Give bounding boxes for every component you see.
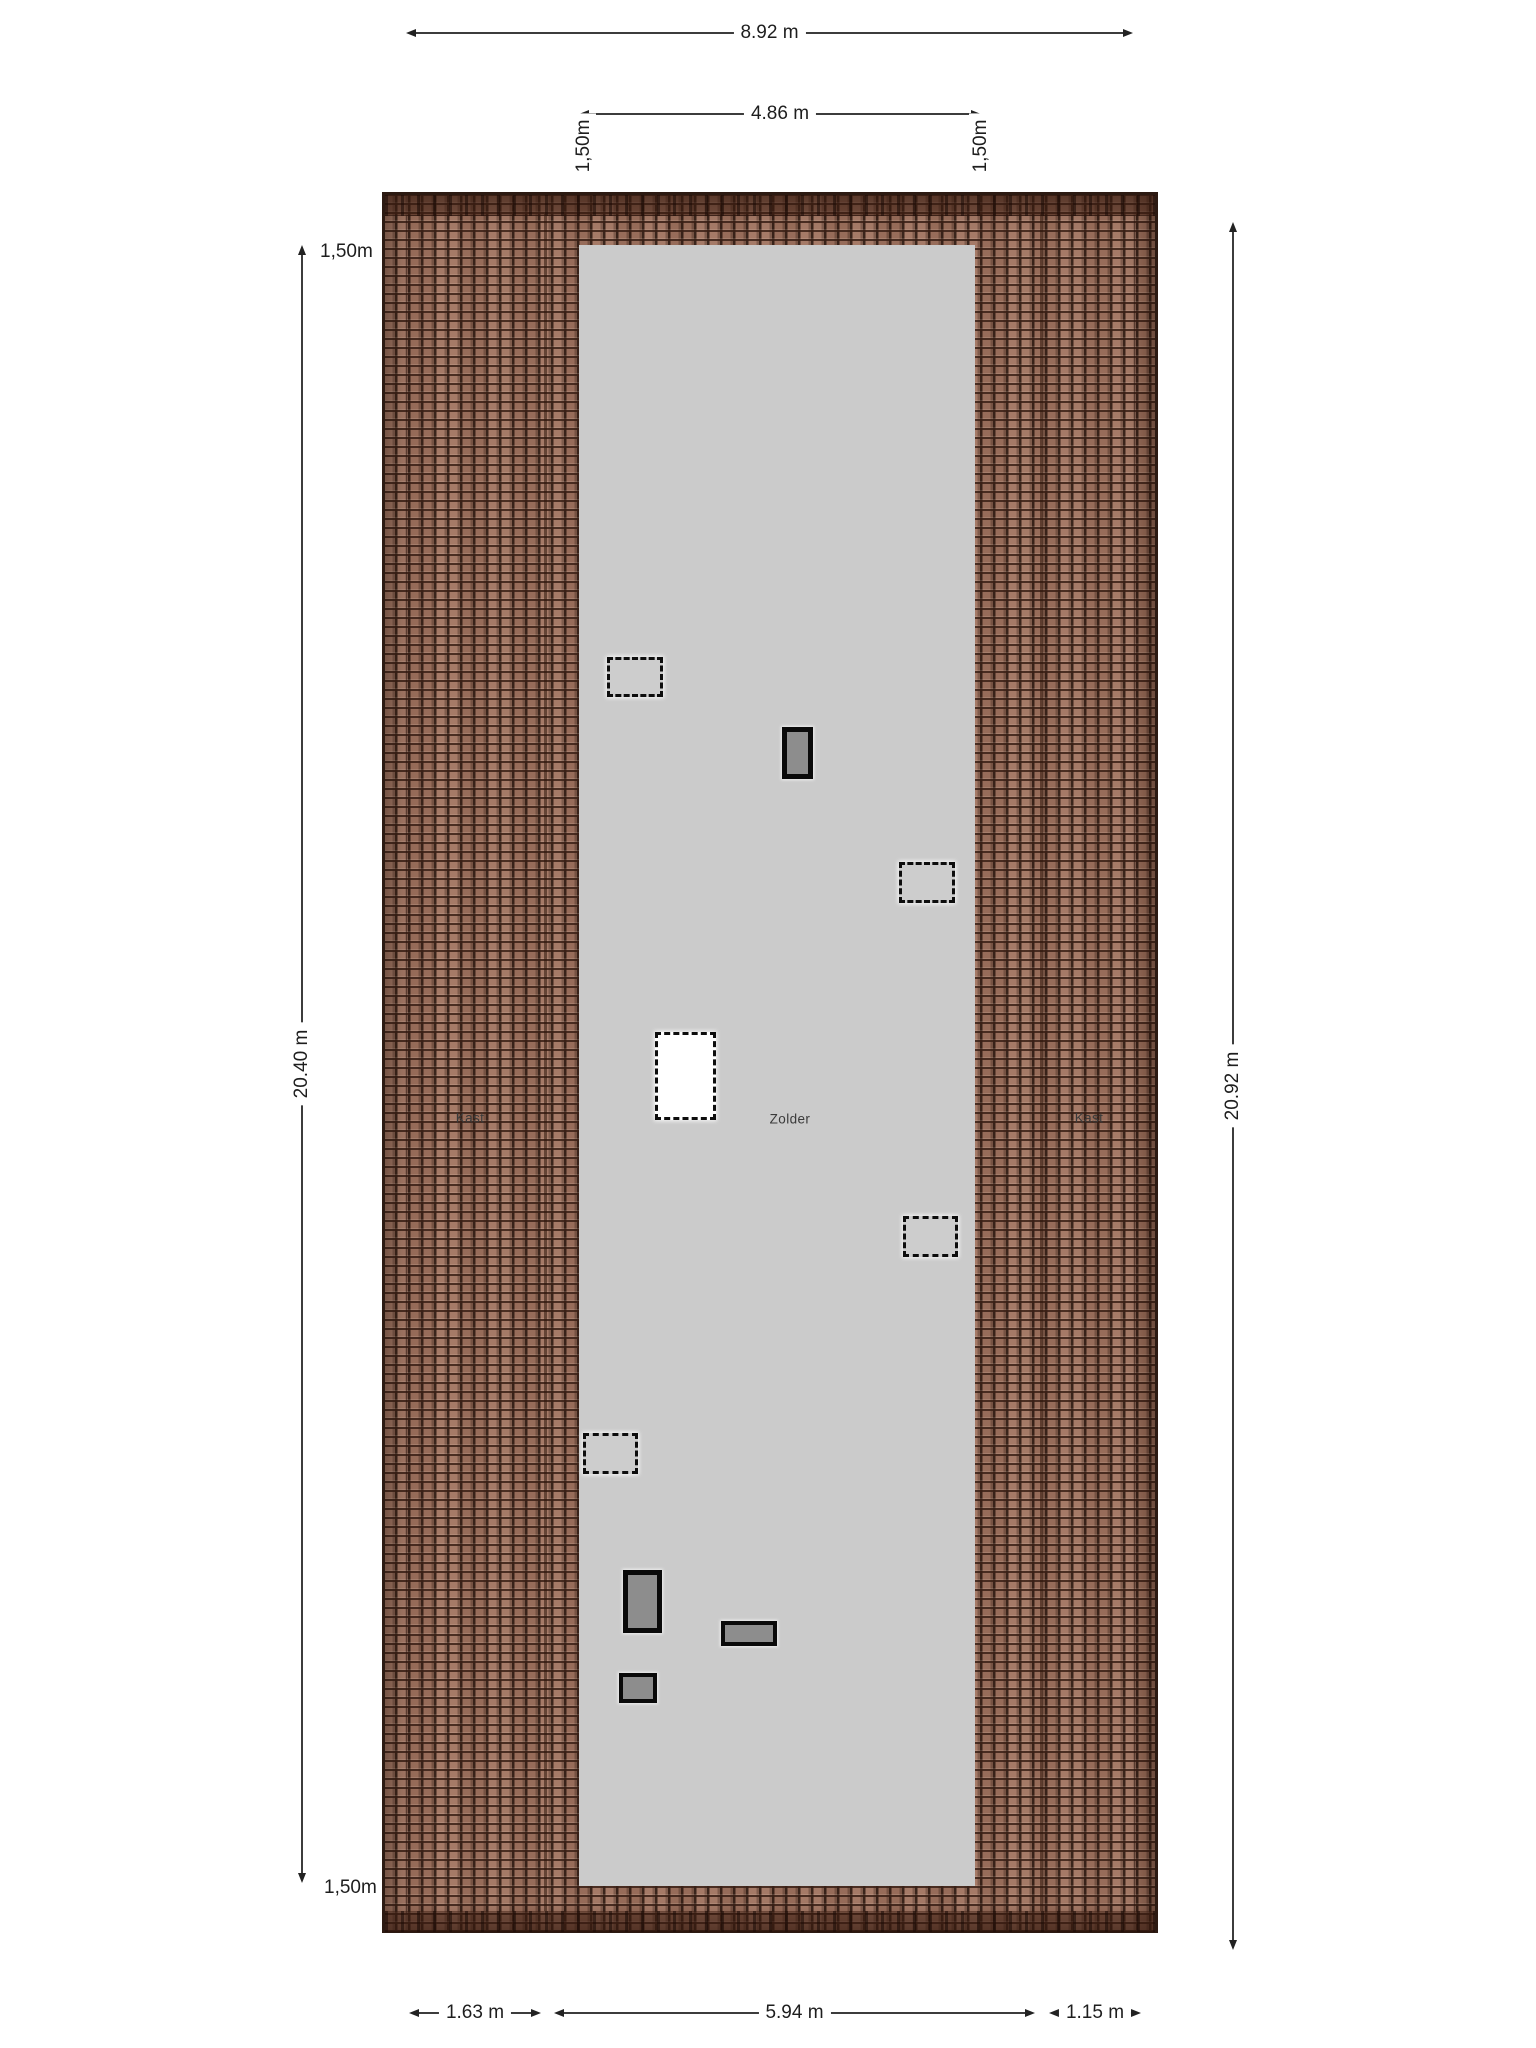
room-label-kast-right: Kast [1075, 1111, 1104, 1126]
contour-height-label-left: 1,50m [572, 114, 596, 179]
arrowhead-left-icon [406, 29, 416, 37]
arrowhead-left-icon [1049, 2009, 1059, 2017]
arrowhead-right-icon [1025, 2009, 1035, 2017]
dimension-left-height: 20.40 m [298, 245, 306, 1883]
dimension-total-width: 8.92 m [406, 24, 1133, 42]
contour-height-label-top-left: 1,50m [320, 241, 373, 263]
contour-height-label-right: 1,50m [969, 114, 993, 179]
chimney [782, 727, 813, 779]
arrowhead-left-icon [409, 2009, 419, 2017]
dimension-label: 1.15 m [1059, 2002, 1131, 2024]
dimension-bottom-left: 1.63 m [409, 2004, 541, 2022]
attic-floor [579, 245, 975, 1886]
arrowhead-left-icon [554, 2009, 564, 2017]
roof-window-outline [583, 1433, 638, 1474]
dimension-inner-width: 4.86 m [579, 105, 981, 123]
dimension-bottom-right: 1.15 m [1049, 2004, 1141, 2022]
dimension-right-height: 20.92 m [1229, 222, 1237, 1950]
roof-vent [619, 1673, 657, 1703]
height-contour-left-line [544, 214, 547, 1911]
arrowhead-up-icon [298, 245, 306, 255]
arrowhead-right-icon [531, 2009, 541, 2017]
dimension-bottom-middle: 5.94 m [554, 2004, 1035, 2022]
stair-opening [655, 1032, 716, 1120]
dimension-label: 1.63 m [439, 2002, 511, 2024]
arrowhead-right-icon [1123, 29, 1133, 37]
dimension-label: 5.94 m [758, 2002, 830, 2024]
roof-window-outline [903, 1216, 958, 1257]
dimension-label: 20.40 m [291, 1023, 313, 1106]
dimension-label: 4.86 m [744, 103, 816, 125]
arrowhead-up-icon [1229, 222, 1237, 232]
contour-height-label-bottom-left: 1,50m [324, 1877, 377, 1899]
chimney [623, 1570, 662, 1633]
room-label-zolder: Zolder [770, 1112, 811, 1127]
roof-window-outline [899, 862, 955, 903]
roof-ridge-top [385, 195, 1155, 216]
roof-ridge-bottom [385, 1911, 1155, 1932]
arrowhead-right-icon [1131, 2009, 1141, 2017]
arrowhead-down-icon [298, 1873, 306, 1883]
dimension-label: 20.92 m [1222, 1045, 1244, 1128]
floorplan-page: { "rooms": [ {"label": "Kast", "x": 470,… [0, 0, 1536, 2048]
room-label-kast-left: Kast [456, 1111, 485, 1126]
height-contour-right-line [1040, 214, 1043, 1911]
roof-window-outline [607, 657, 663, 697]
arrowhead-down-icon [1229, 1940, 1237, 1950]
roof-vent [721, 1621, 777, 1646]
dimension-label: 8.92 m [733, 22, 805, 44]
